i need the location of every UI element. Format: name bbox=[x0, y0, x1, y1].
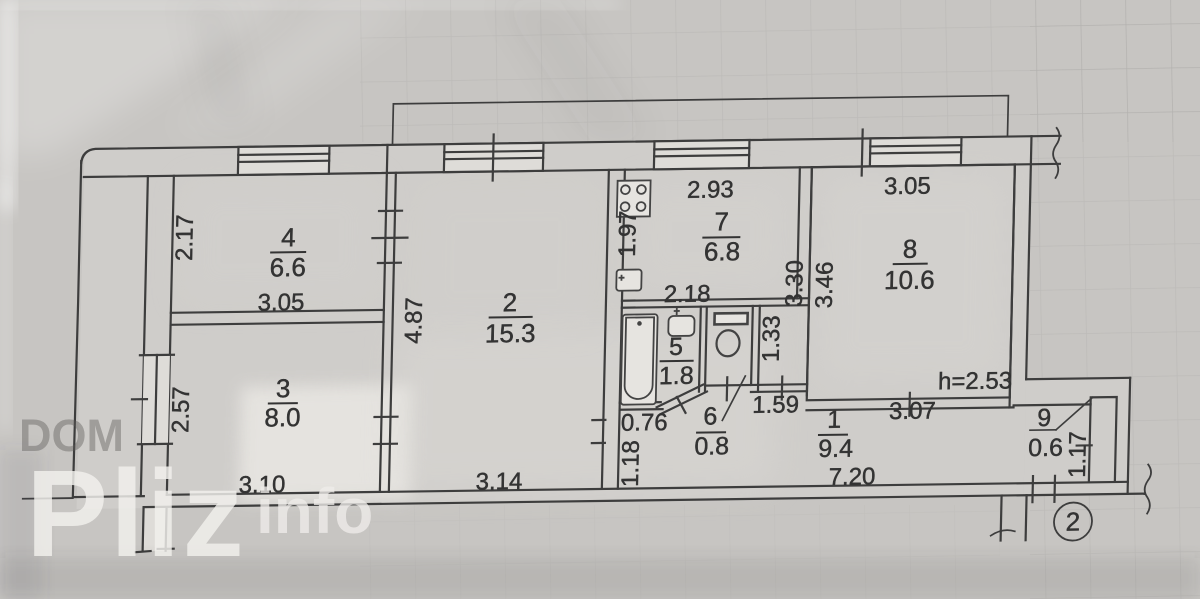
svg-text:2: 2 bbox=[502, 287, 517, 317]
svg-text:3.30: 3.30 bbox=[781, 260, 809, 307]
svg-text:1.33: 1.33 bbox=[758, 315, 786, 362]
svg-text:1.8: 1.8 bbox=[659, 362, 694, 390]
svg-text:2.57: 2.57 bbox=[167, 386, 195, 433]
svg-text:8.0: 8.0 bbox=[264, 402, 301, 432]
svg-text:3.05: 3.05 bbox=[257, 289, 304, 317]
svg-text:1.59: 1.59 bbox=[752, 391, 799, 419]
svg-text:2.18: 2.18 bbox=[663, 281, 710, 309]
svg-text:9.4: 9.4 bbox=[818, 435, 853, 463]
svg-text:6.6: 6.6 bbox=[269, 252, 306, 282]
svg-text:7.20: 7.20 bbox=[828, 463, 875, 491]
svg-text:10.6: 10.6 bbox=[884, 265, 935, 296]
svg-text:3.07: 3.07 bbox=[889, 397, 936, 425]
svg-text:0.6: 0.6 bbox=[1028, 434, 1063, 462]
svg-text:3.14: 3.14 bbox=[475, 468, 522, 496]
svg-text:2.17: 2.17 bbox=[171, 214, 199, 261]
svg-text:1.18: 1.18 bbox=[617, 440, 645, 487]
svg-text:9: 9 bbox=[1037, 404, 1052, 432]
svg-text:4: 4 bbox=[281, 222, 296, 252]
svg-text:0.8: 0.8 bbox=[694, 432, 729, 460]
svg-text:1: 1 bbox=[827, 406, 842, 434]
svg-text:1.17: 1.17 bbox=[1064, 431, 1092, 478]
svg-text:7: 7 bbox=[714, 206, 729, 236]
svg-text:info: info bbox=[256, 475, 373, 547]
svg-text:5: 5 bbox=[669, 333, 684, 361]
svg-text:Pliz: Pliz bbox=[26, 446, 246, 583]
svg-text:1.97: 1.97 bbox=[614, 210, 642, 257]
svg-text:h=2.53: h=2.53 bbox=[938, 367, 1013, 395]
svg-text:6: 6 bbox=[703, 402, 718, 430]
svg-text:15.3: 15.3 bbox=[485, 318, 536, 349]
svg-text:4.87: 4.87 bbox=[400, 297, 428, 344]
svg-text:0.76: 0.76 bbox=[621, 409, 668, 437]
svg-text:2.93: 2.93 bbox=[687, 176, 734, 204]
svg-text:3.05: 3.05 bbox=[884, 173, 931, 201]
svg-text:6.8: 6.8 bbox=[704, 236, 741, 266]
svg-text:3.46: 3.46 bbox=[811, 261, 839, 308]
svg-text:3: 3 bbox=[276, 373, 291, 403]
svg-text:2: 2 bbox=[1065, 506, 1080, 536]
svg-text:8: 8 bbox=[902, 234, 917, 264]
